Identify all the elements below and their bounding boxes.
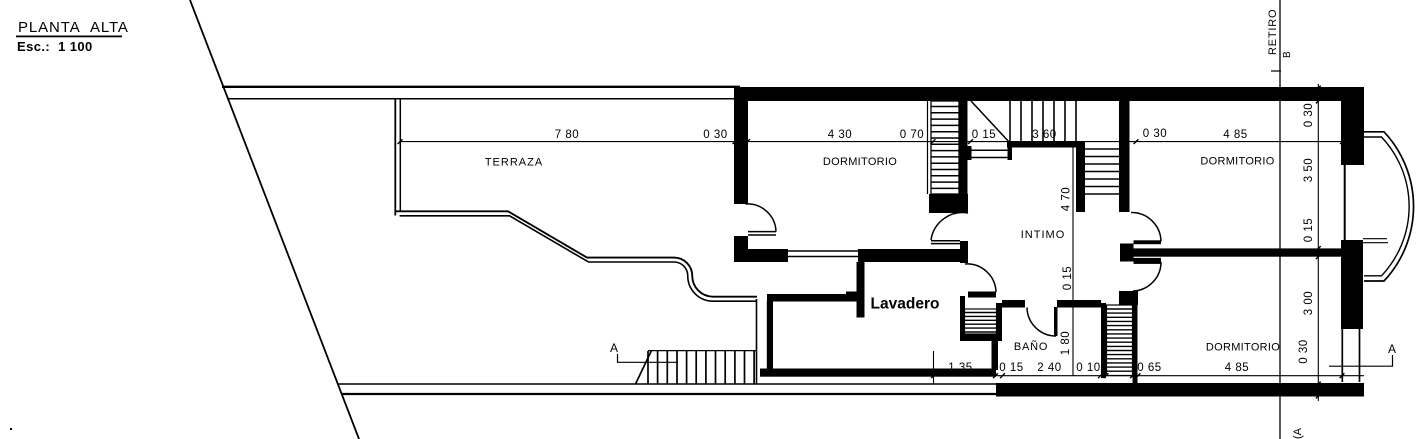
svg-text:3 60: 3 60	[1032, 129, 1056, 141]
svg-text:1 80: 1 80	[1060, 331, 1072, 355]
svg-text:INTIMO: INTIMO	[1021, 229, 1066, 241]
svg-text:0 30: 0 30	[1298, 339, 1310, 363]
svg-text:7 80: 7 80	[555, 129, 579, 141]
svg-text:BAÑO: BAÑO	[1014, 340, 1048, 353]
svg-text:A: A	[610, 341, 618, 355]
svg-text:3 50: 3 50	[1303, 158, 1315, 182]
svg-text:TERRAZA: TERRAZA	[485, 157, 543, 169]
svg-text:1 35: 1 35	[948, 362, 972, 374]
svg-text:DORMITORIO: DORMITORIO	[1200, 156, 1274, 168]
svg-text:Esc.: 1 100: Esc.: 1 100	[17, 39, 93, 54]
svg-text:0 30: 0 30	[1303, 103, 1315, 127]
svg-text:RETIRO: RETIRO	[1267, 9, 1279, 55]
svg-text:0 30: 0 30	[703, 129, 727, 141]
svg-text:0 70: 0 70	[900, 129, 924, 141]
svg-text:0 15: 0 15	[1062, 266, 1074, 290]
svg-text:A: A	[1388, 342, 1396, 356]
svg-text:2 40: 2 40	[1037, 362, 1061, 374]
svg-text:DORMITORIO: DORMITORIO	[1206, 342, 1280, 354]
svg-text:4 70: 4 70	[1061, 187, 1073, 211]
svg-text:Lavadero: Lavadero	[871, 296, 940, 313]
svg-text:B: B	[1282, 51, 1293, 58]
svg-text:4 30: 4 30	[828, 129, 852, 141]
svg-text:(A: (A	[1292, 427, 1304, 439]
svg-text:0 65: 0 65	[1137, 362, 1161, 374]
svg-text:0 15: 0 15	[999, 362, 1023, 374]
svg-text:DORMITORIO: DORMITORIO	[823, 156, 897, 168]
svg-text:4 85: 4 85	[1223, 129, 1247, 141]
svg-text:4 85: 4 85	[1225, 362, 1249, 374]
svg-text:PLANTA ALTA: PLANTA ALTA	[18, 19, 129, 36]
svg-text:3 00: 3 00	[1303, 291, 1315, 315]
svg-text:0 10: 0 10	[1076, 362, 1100, 374]
svg-text:0 15: 0 15	[1303, 218, 1315, 242]
svg-text:0 15: 0 15	[972, 129, 996, 141]
svg-text:0 30: 0 30	[1143, 128, 1167, 140]
